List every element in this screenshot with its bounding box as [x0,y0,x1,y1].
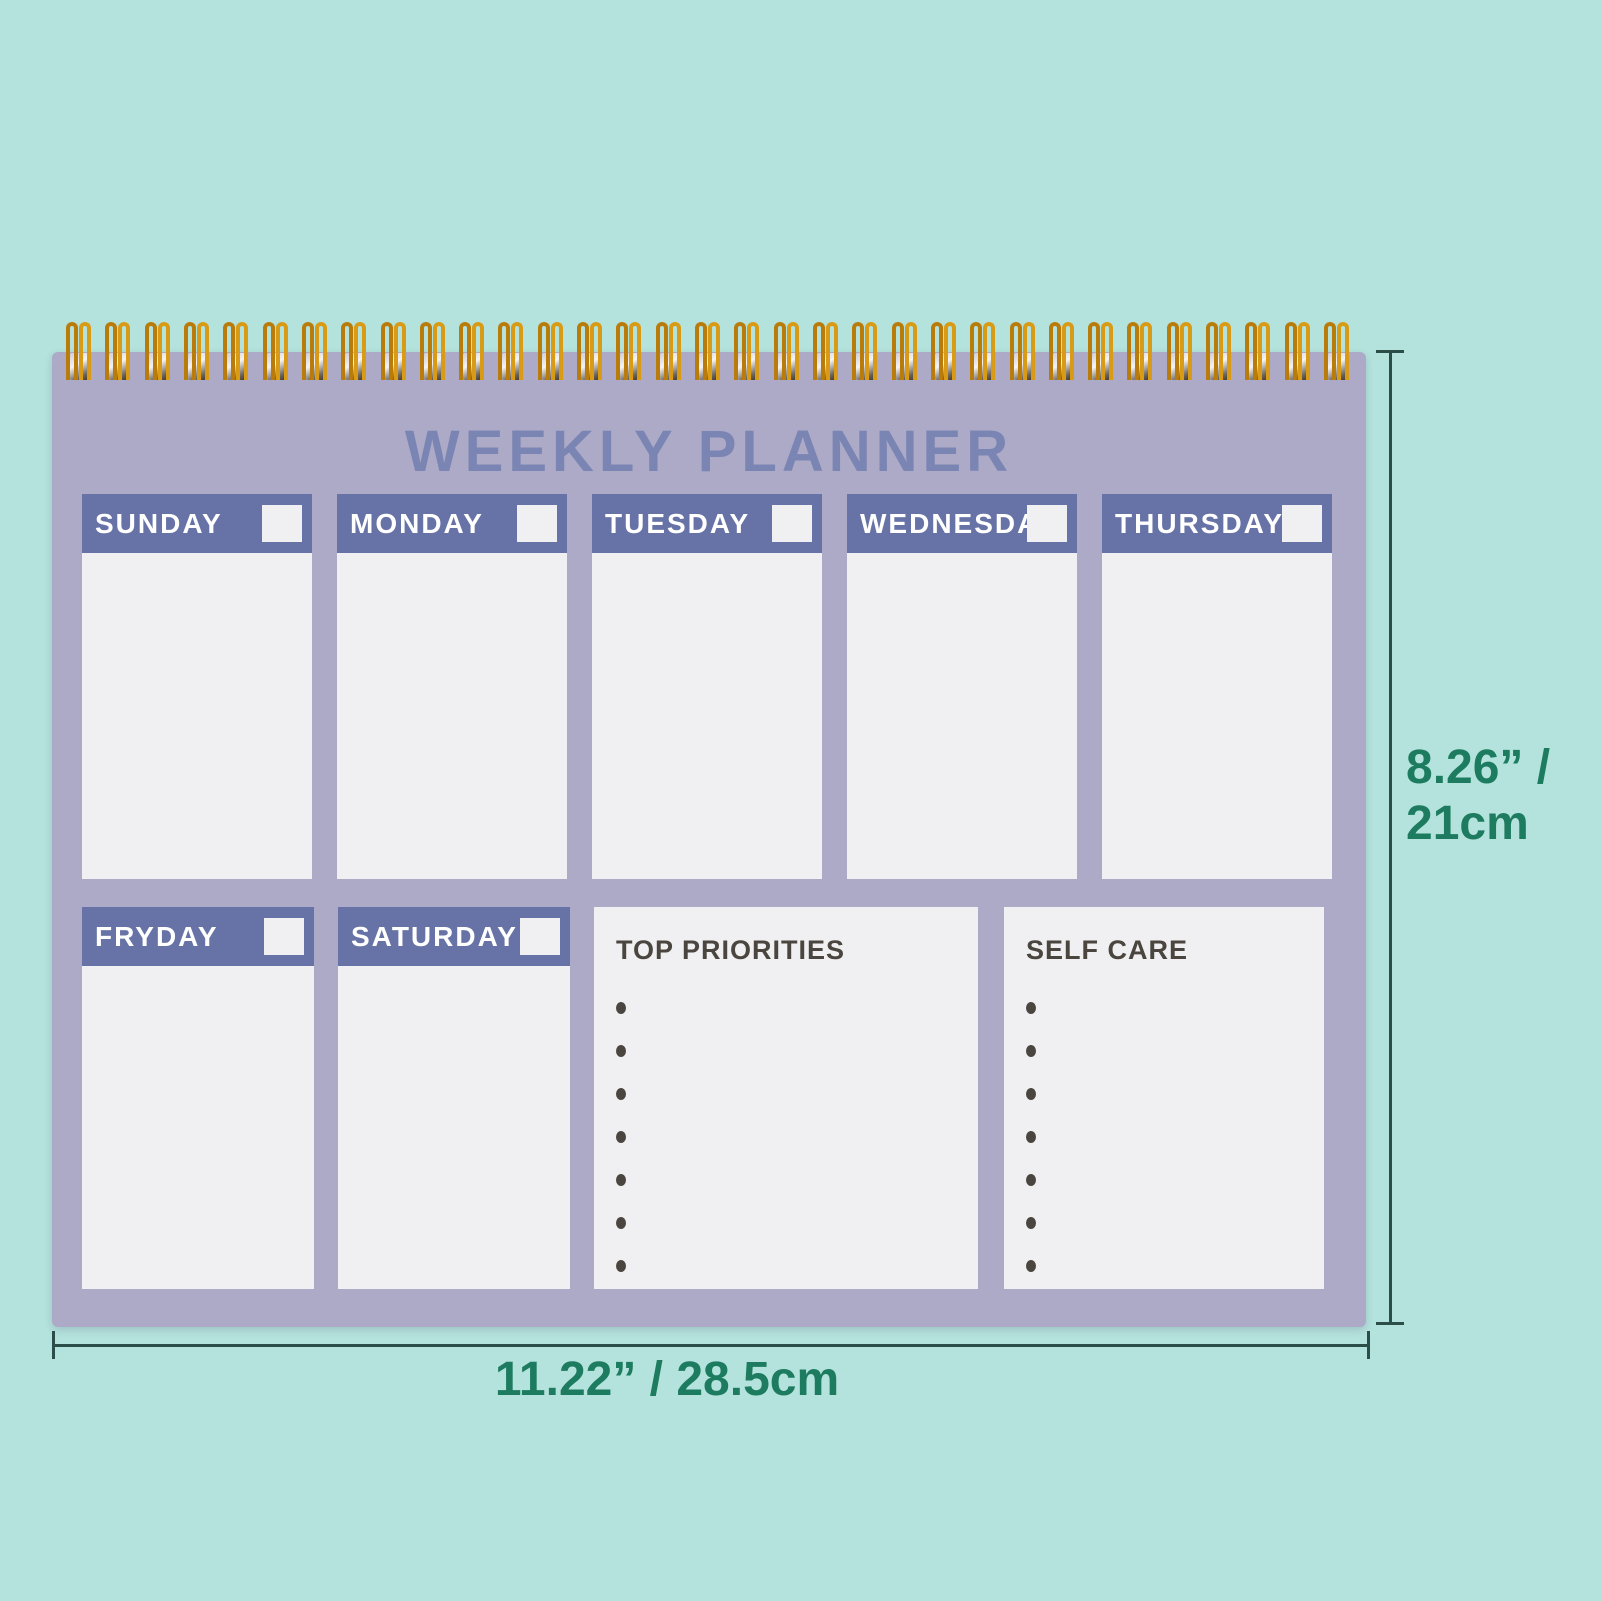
spiral-wire [184,322,196,380]
spiral-wire [341,322,353,380]
spiral-wire [787,322,799,380]
spiral-wire [498,322,510,380]
spiral-wire [629,322,641,380]
day-card-thursday: THURSDAY [1102,494,1332,879]
spiral-loop [420,322,448,394]
spiral-loop [223,322,251,394]
day-card-monday: MONDAY [337,494,567,879]
spiral-wire [905,322,917,380]
spiral-loop [774,322,802,394]
spiral-wire [1337,322,1349,380]
spiral-loop [734,322,762,394]
spiral-wire [944,322,956,380]
spiral-wire [315,322,327,380]
spiral-wire [66,322,78,380]
spiral-wire [79,322,91,380]
spiral-loop [892,322,920,394]
spiral-wire [708,322,720,380]
spiral-loop [1010,322,1038,394]
spiral-wire [1140,322,1152,380]
spiral-wire [1324,322,1336,380]
spiral-wire [551,322,563,380]
day-card-fryday: FRYDAY [82,907,314,1289]
date-box [262,505,302,542]
spiral-wire [223,322,235,380]
day-header: SATURDAY [338,907,570,966]
day-header: TUESDAY [592,494,822,553]
spiral-loop [970,322,998,394]
spiral-wire [394,322,406,380]
spiral-wire [158,322,170,380]
bullet-dot [616,1088,626,1100]
spiral-wire [577,322,589,380]
bullet-dot [616,1045,626,1057]
days-row-bottom: FRYDAY SATURDAY TOP PRIORITIES SELF CARE [82,907,1336,1289]
bullet-list [1026,1002,1036,1272]
spiral-loop [1206,322,1234,394]
height-dimension-label-line1: 8.26” / [1406,740,1550,796]
day-label: TUESDAY [605,508,750,540]
section-title: TOP PRIORITIES [594,907,978,966]
spiral-wire [656,322,668,380]
days-row-top: SUNDAY MONDAY TUESDAY [82,494,1332,879]
spiral-loop [852,322,880,394]
spiral-loop [1049,322,1077,394]
day-card-tuesday: TUESDAY [592,494,822,879]
day-label: SUNDAY [95,508,223,540]
bullet-dot [1026,1174,1036,1186]
day-notes-area [82,553,312,879]
height-dimension-cap-top [1376,350,1404,353]
day-header: THURSDAY [1102,494,1332,553]
height-dimension-line [1389,352,1392,1325]
spiral-loop [616,322,644,394]
day-notes-area [82,966,314,1289]
spiral-loop [145,322,173,394]
spiral-wire [1127,322,1139,380]
spiral-wire [734,322,746,380]
spiral-loop [538,322,566,394]
spiral-loop [1324,322,1352,394]
planner-pad: WEEKLY PLANNER SUNDAY MONDAY TUESDAY [52,352,1366,1327]
day-notes-area [1102,553,1332,879]
date-box [1027,505,1067,542]
spiral-wire [236,322,248,380]
spiral-wire [852,322,864,380]
day-header: SUNDAY [82,494,312,553]
height-dimension-cap-bottom [1376,1322,1404,1325]
day-notes-area [338,966,570,1289]
spiral-wire [1180,322,1192,380]
day-card-wednesday: WEDNESDAY [847,494,1077,879]
day-label: MONDAY [350,508,484,540]
spiral-wire [511,322,523,380]
section-title: SELF CARE [1004,907,1324,966]
spiral-loop [302,322,330,394]
spiral-loop [931,322,959,394]
day-label: THURSDAY [1115,508,1284,540]
spiral-wire [1023,322,1035,380]
spiral-wire [616,322,628,380]
spiral-wire [826,322,838,380]
spiral-wire [538,322,550,380]
spiral-loop [263,322,291,394]
spiral-wire [1206,322,1218,380]
day-header: WEDNESDAY [847,494,1077,553]
spiral-loop [1285,322,1313,394]
day-notes-area [337,553,567,879]
spiral-wire [865,322,877,380]
spiral-wire [197,322,209,380]
spiral-wire [118,322,130,380]
spiral-wire [983,322,995,380]
spiral-wire [1245,322,1257,380]
spiral-wire [302,322,314,380]
spiral-binding [52,322,1366,394]
spiral-loop [66,322,94,394]
spiral-wire [145,322,157,380]
day-notes-area [847,553,1077,879]
width-dimension-line [53,1344,1369,1347]
spiral-wire [1049,322,1061,380]
product-photo-stage: WEEKLY PLANNER SUNDAY MONDAY TUESDAY [0,0,1601,1601]
day-card-sunday: SUNDAY [82,494,312,879]
spiral-wire [1298,322,1310,380]
day-header: MONDAY [337,494,567,553]
spiral-wire [1285,322,1297,380]
spiral-wire [695,322,707,380]
width-dimension-label: 11.22” / 28.5cm [417,1352,917,1407]
spiral-loop [459,322,487,394]
spiral-loop [1167,322,1195,394]
bullet-dot [1026,1088,1036,1100]
spiral-loop [695,322,723,394]
spiral-wire [892,322,904,380]
bullet-dot [1026,1045,1036,1057]
spiral-wire [590,322,602,380]
bullet-dot [1026,1131,1036,1143]
spiral-wire [1219,322,1231,380]
spiral-wire [1088,322,1100,380]
spiral-loop [1245,322,1273,394]
width-dimension-cap-right [1367,1331,1370,1359]
spiral-loop [1127,322,1155,394]
spiral-loop [341,322,369,394]
spiral-wire [381,322,393,380]
spiral-wire [1101,322,1113,380]
date-box [264,918,304,955]
spiral-wire [669,322,681,380]
date-box [517,505,557,542]
spiral-loop [184,322,212,394]
spiral-wire [433,322,445,380]
spiral-loop [813,322,841,394]
spiral-loop [577,322,605,394]
spiral-wire [747,322,759,380]
planner-title: WEEKLY PLANNER [52,418,1366,485]
day-header: FRYDAY [82,907,314,966]
spiral-loop [1088,322,1116,394]
date-box [772,505,812,542]
spiral-wire [276,322,288,380]
spiral-wire [420,322,432,380]
spiral-wire [970,322,982,380]
spiral-loop [498,322,526,394]
date-box [520,918,560,955]
spiral-loop [381,322,409,394]
bullet-dot [616,1260,626,1272]
bullet-dot [616,1217,626,1229]
bullet-dot [616,1131,626,1143]
height-dimension-label: 8.26” / 21cm [1406,740,1550,852]
day-notes-area [592,553,822,879]
spiral-wire [931,322,943,380]
spiral-loop [105,322,133,394]
day-label: SATURDAY [351,921,518,953]
spiral-wire [459,322,471,380]
spiral-wire [774,322,786,380]
spiral-loop [656,322,684,394]
bullet-list [616,1002,626,1272]
height-dimension-label-line2: 21cm [1406,796,1550,852]
spiral-wire [1258,322,1270,380]
day-label: FRYDAY [95,921,219,953]
date-box [1282,505,1322,542]
top-priorities-card: TOP PRIORITIES [594,907,978,1289]
spiral-wire [472,322,484,380]
bullet-dot [1026,1260,1036,1272]
self-care-card: SELF CARE [1004,907,1324,1289]
spiral-wire [1167,322,1179,380]
bullet-dot [616,1174,626,1186]
spiral-wire [354,322,366,380]
spiral-wire [813,322,825,380]
bullet-dot [1026,1002,1036,1014]
bullet-dot [616,1002,626,1014]
spiral-wire [1010,322,1022,380]
spiral-wire [105,322,117,380]
day-card-saturday: SATURDAY [338,907,570,1289]
spiral-wire [1062,322,1074,380]
spiral-wire [263,322,275,380]
width-dimension-cap-left [52,1331,55,1359]
bullet-dot [1026,1217,1036,1229]
